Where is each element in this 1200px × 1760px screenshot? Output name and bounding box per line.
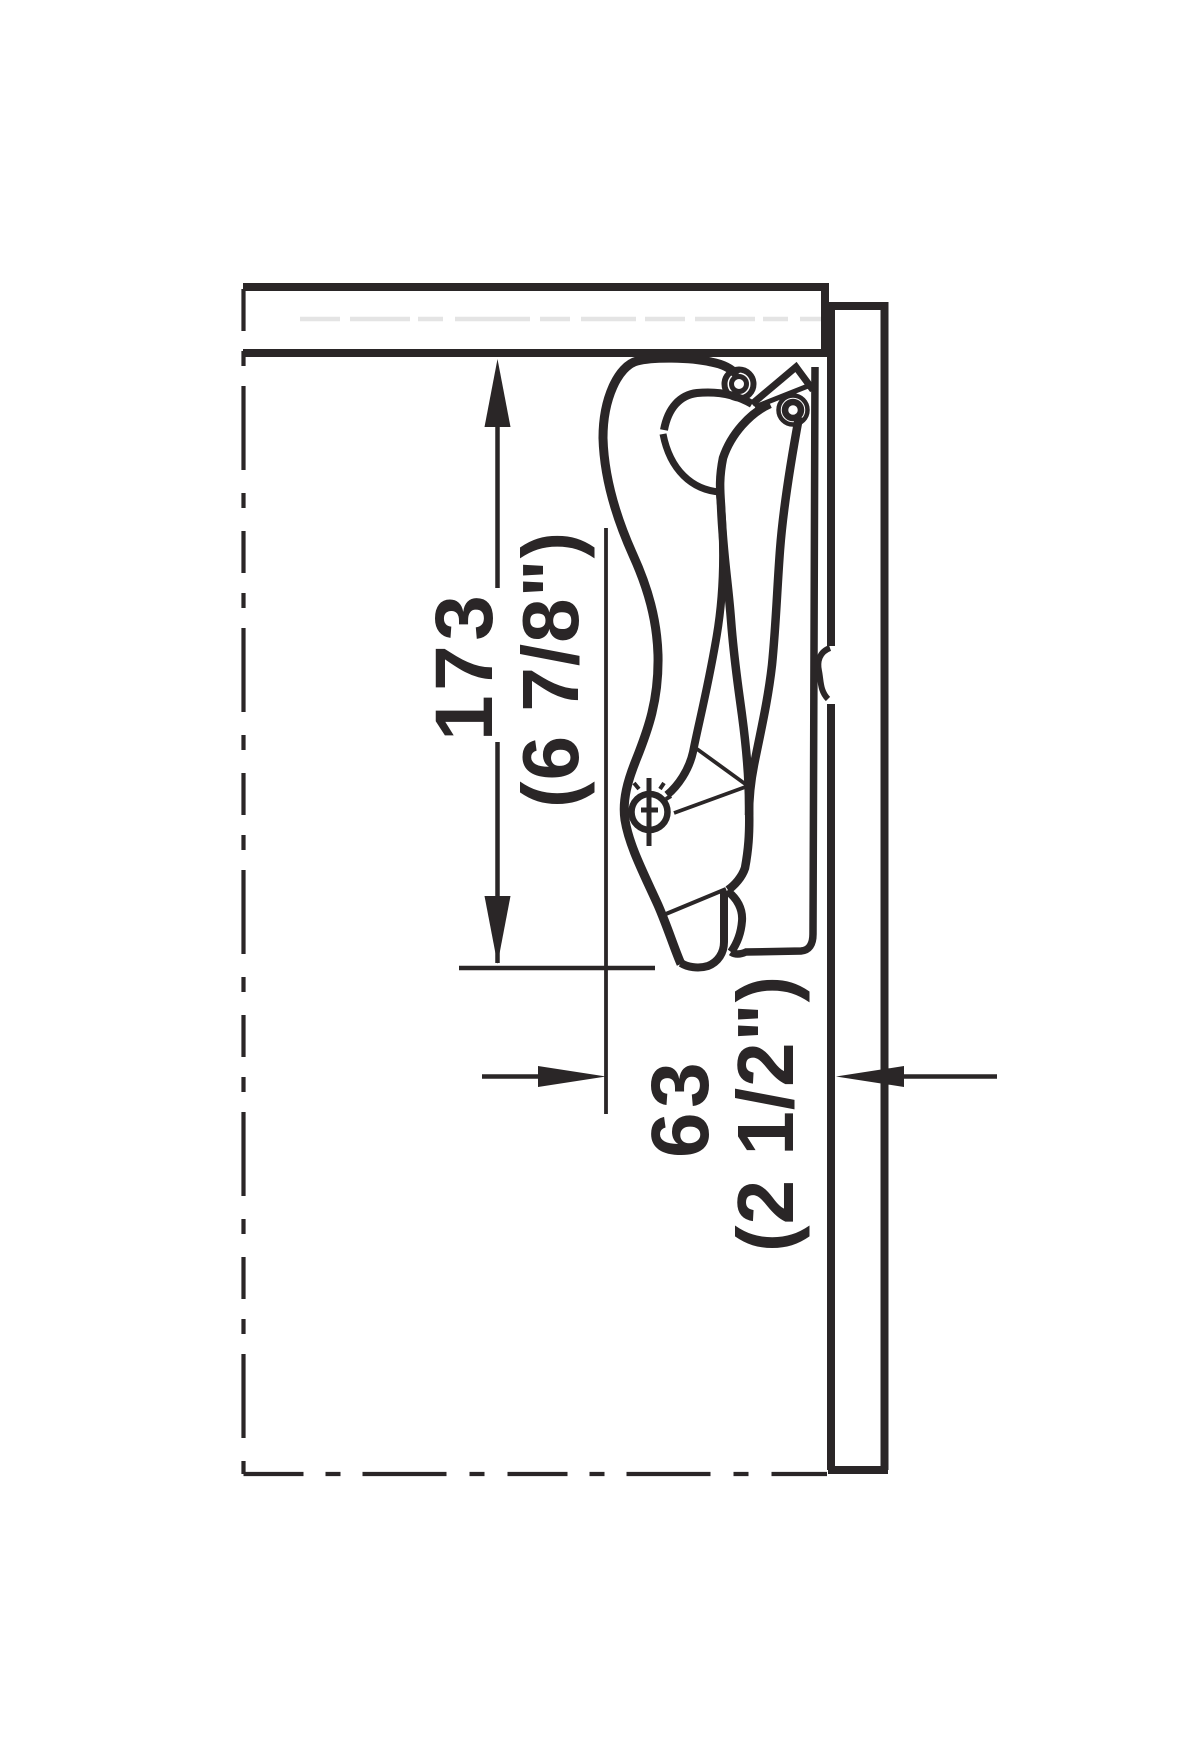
- svg-text:173: 173: [419, 591, 510, 741]
- svg-text:(2 1/2"): (2 1/2"): [721, 975, 810, 1252]
- svg-text:63: 63: [635, 1058, 726, 1158]
- svg-text:(6 7/8"): (6 7/8"): [506, 531, 595, 808]
